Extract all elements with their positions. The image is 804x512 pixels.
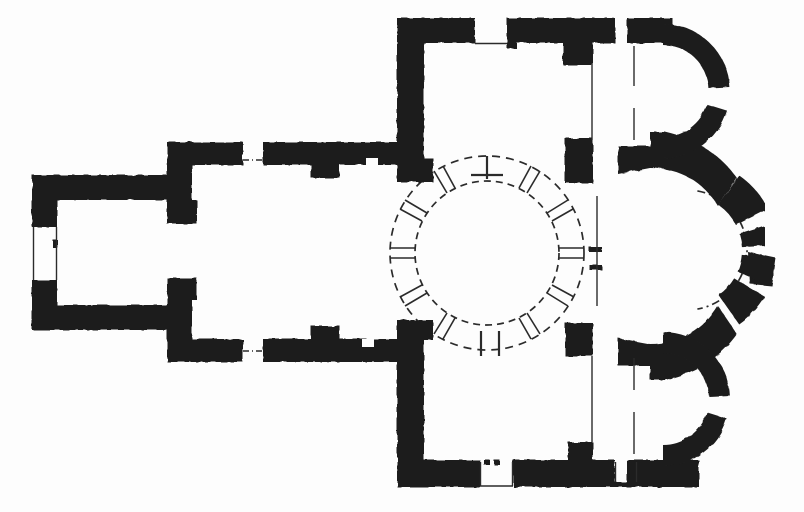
apse-walls bbox=[663, 35, 760, 456]
ne-apse-wall-upper bbox=[663, 35, 719, 89]
naos-north-pilaster bbox=[311, 165, 340, 178]
south-arm-bottom-wall-b bbox=[513, 460, 615, 487]
se-crossing-pier bbox=[565, 323, 593, 356]
main-apse-wall-a bbox=[729, 190, 752, 217]
se-apse-wall-lower bbox=[663, 416, 717, 456]
south-arm-se-pier bbox=[568, 442, 593, 462]
naos-south-wall-notch bbox=[362, 339, 374, 347]
narthex-west-wall-upper bbox=[32, 175, 57, 227]
west-window-jamb-tick bbox=[53, 240, 58, 248]
wall-notches bbox=[362, 158, 378, 347]
main-apse-wall-b bbox=[757, 229, 760, 247]
naos-north-wall-notch bbox=[366, 158, 378, 166]
church-floor-plan bbox=[0, 0, 804, 512]
nw-crossing-pier-foot bbox=[424, 158, 433, 182]
sw-crossing-pier-step bbox=[424, 320, 433, 340]
narthex-south-wall bbox=[32, 305, 168, 330]
naos-north-wall-a bbox=[167, 142, 243, 165]
south-arm-bottom-wall-a bbox=[397, 460, 480, 487]
naos-nw-pier bbox=[167, 200, 197, 224]
naos-south-pilaster bbox=[311, 326, 340, 339]
south-window-jamb-tick-b bbox=[494, 460, 500, 465]
bema-chord-tick-b bbox=[589, 265, 602, 270]
north-arm-ne-pier bbox=[563, 43, 593, 65]
north-arm-top-wall-a bbox=[397, 18, 475, 43]
floor-plan-page bbox=[0, 0, 804, 512]
ne-crossing-pier bbox=[565, 138, 593, 183]
north-arm-top-step bbox=[507, 43, 517, 49]
dome-inner-circle bbox=[415, 181, 559, 325]
ne-apse-wall-lower bbox=[663, 108, 717, 148]
thin-lines bbox=[34, 44, 637, 487]
main-apse-wall-c bbox=[754, 256, 760, 278]
wall-masses bbox=[32, 18, 776, 487]
naos-south-wall-b bbox=[263, 339, 397, 362]
naos-south-wall-a bbox=[167, 339, 243, 362]
north-arm-top-wall-b bbox=[507, 18, 615, 43]
main-apse-wall-d bbox=[729, 288, 750, 310]
bema-chord-tick-a bbox=[589, 247, 602, 252]
south-window-jamb-tick-a bbox=[484, 460, 490, 465]
